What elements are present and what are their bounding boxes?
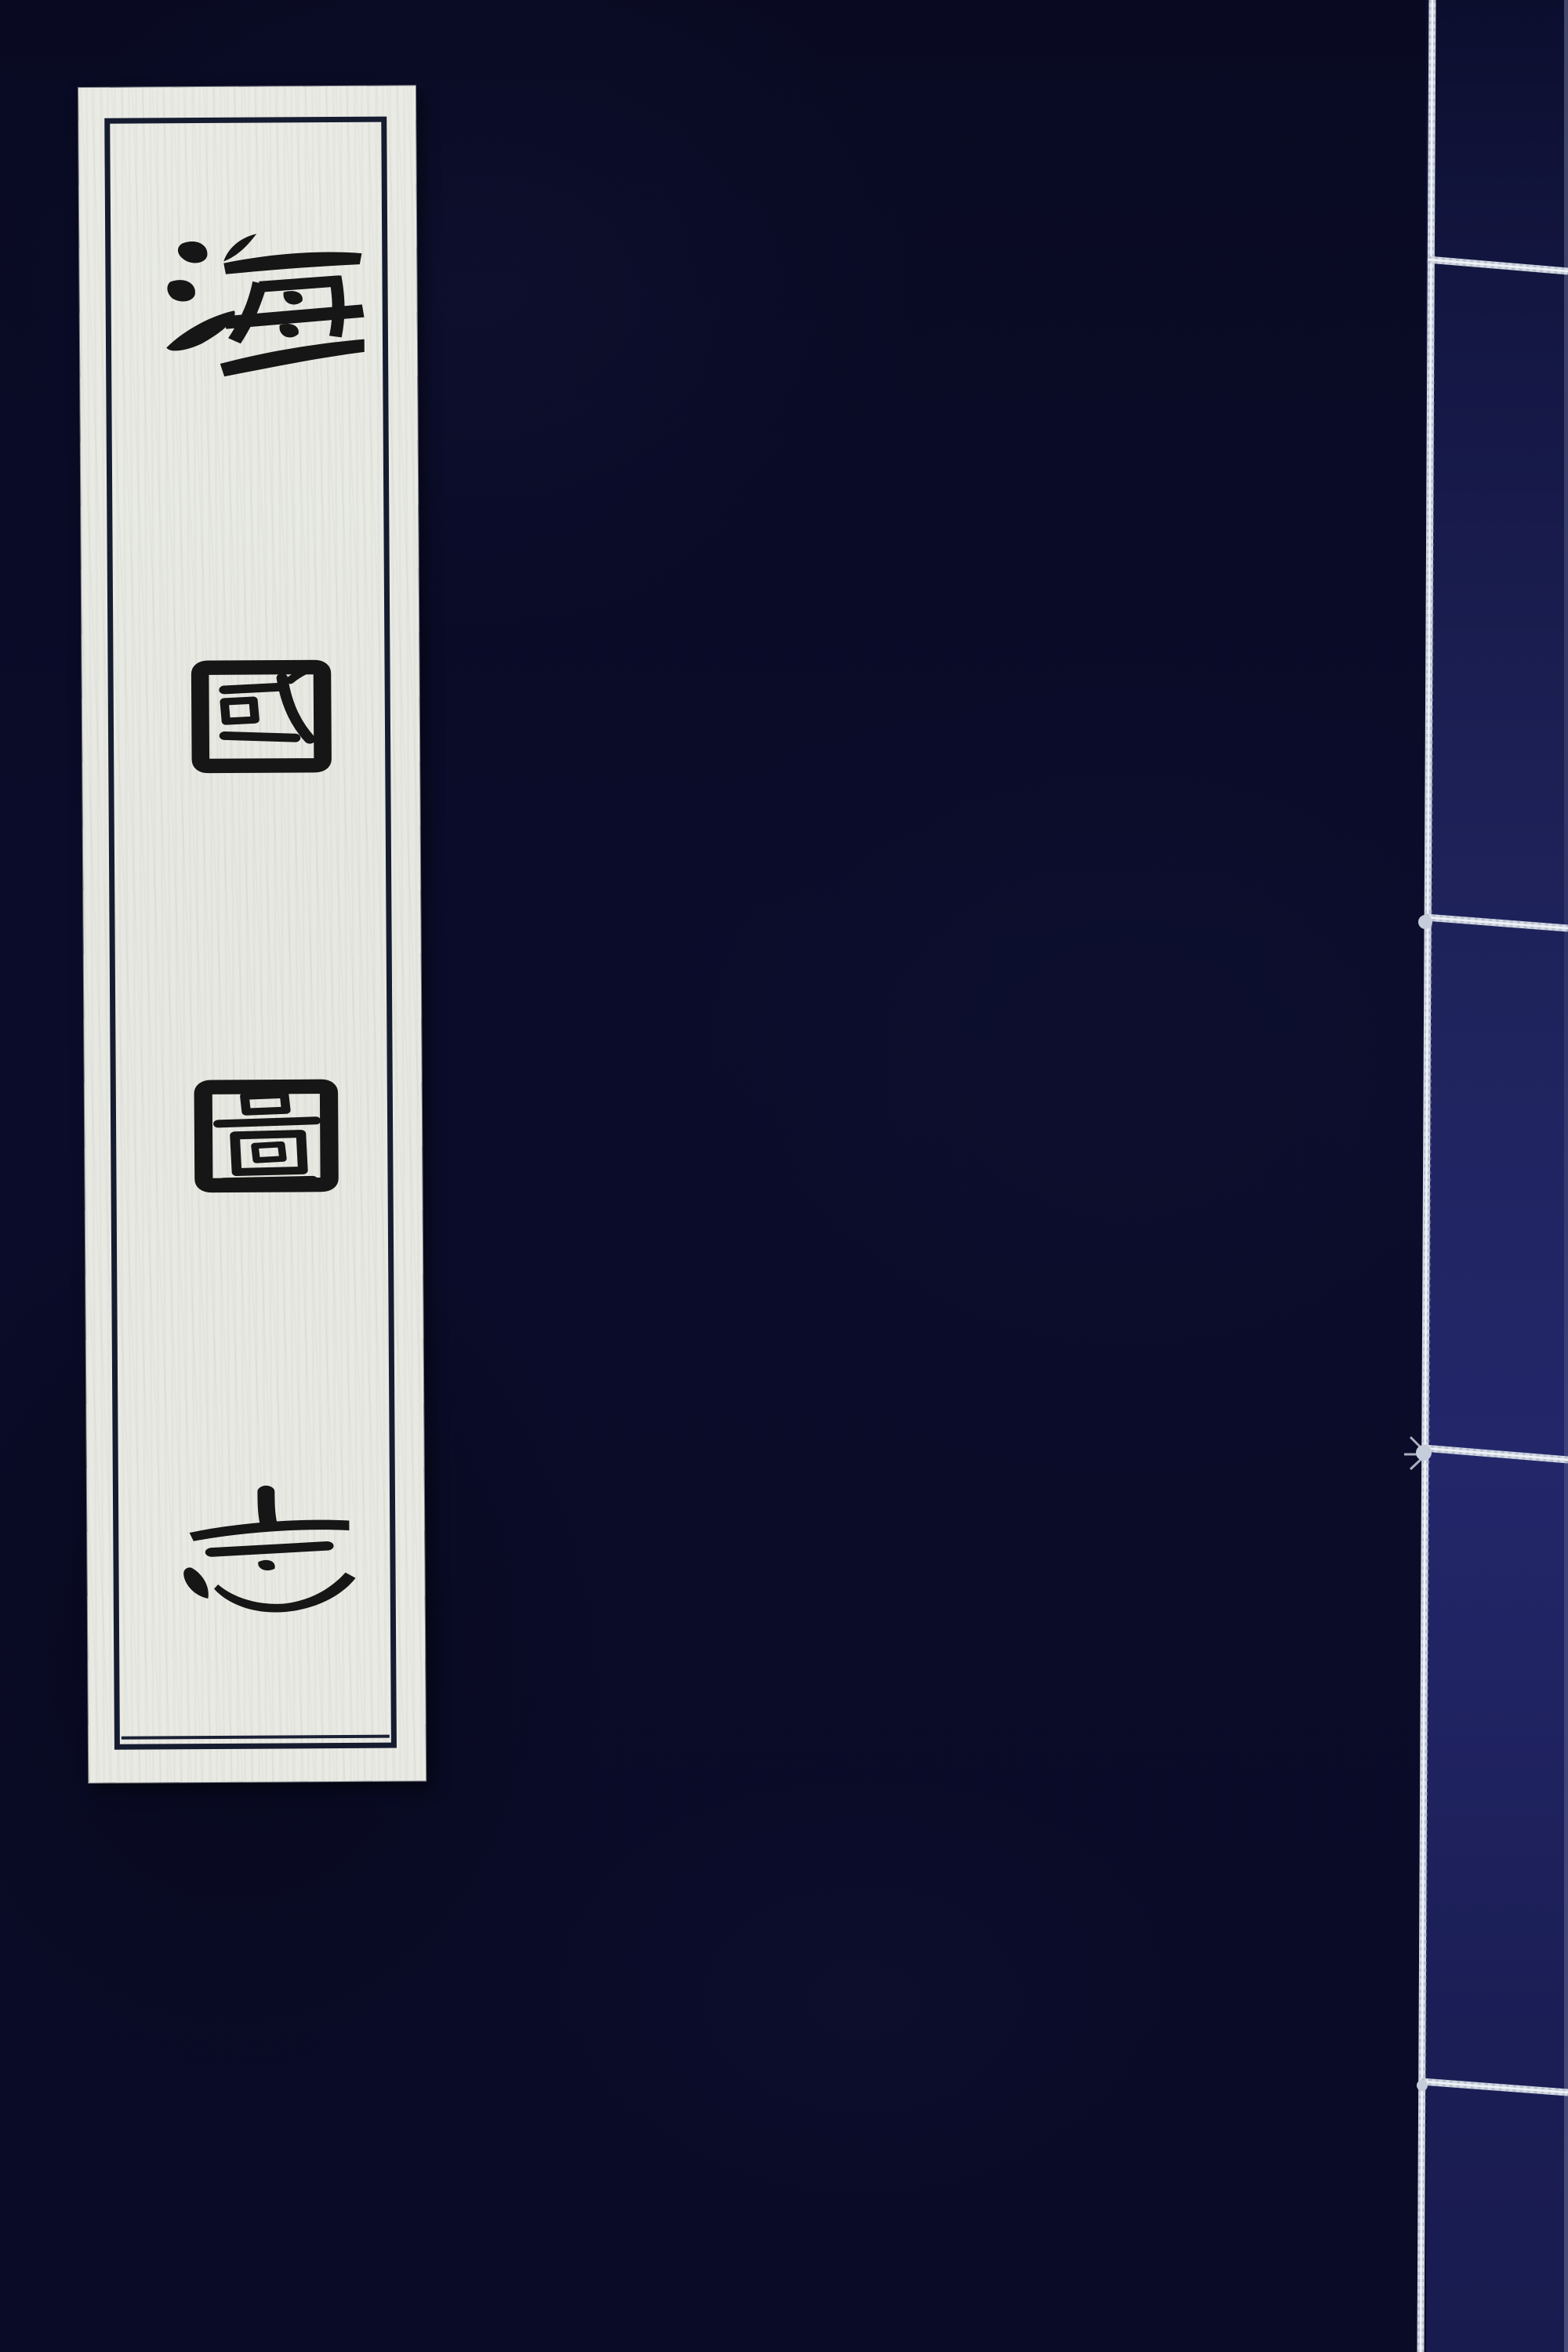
- binding-stitch-1: [1428, 260, 1568, 271]
- title-char-hai: [162, 230, 368, 414]
- zhi-glyph: [167, 1484, 370, 1626]
- stitch-knot: [1417, 2080, 1428, 2091]
- binding-stitch-2: [1418, 915, 1568, 929]
- title-label: [78, 85, 426, 1783]
- stitch-knot: [1416, 1445, 1432, 1461]
- binding-thread-vertical: [1421, 0, 1432, 2352]
- stitch-knot: [1418, 915, 1432, 929]
- tu-glyph: [183, 1069, 350, 1201]
- hai-glyph: [162, 230, 368, 414]
- binding-stitch-4: [1417, 2080, 1568, 2092]
- guo-glyph: [180, 650, 342, 782]
- title-char-guo: [180, 650, 342, 782]
- book-cover: 海國圖志: [0, 0, 1568, 2352]
- title-char-zhi: [167, 1484, 370, 1626]
- title-char-tu: [183, 1069, 350, 1201]
